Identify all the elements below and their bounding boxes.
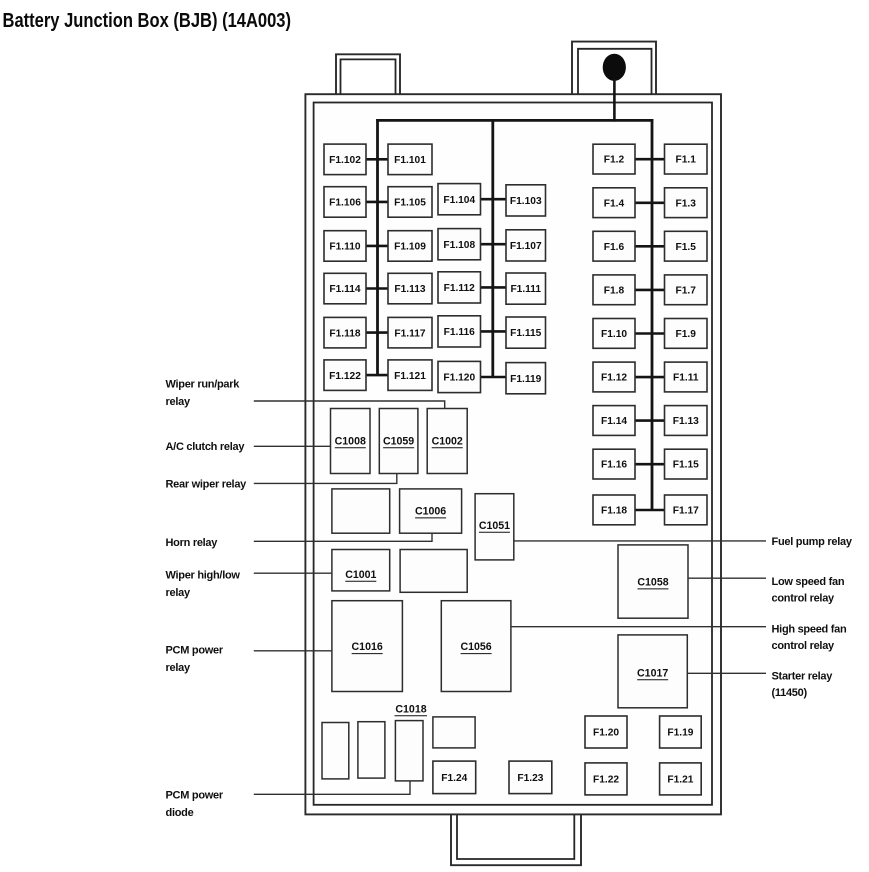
svg-text:F1.114: F1.114 <box>329 284 360 295</box>
svg-text:F1.118: F1.118 <box>329 328 360 339</box>
svg-text:F1.13: F1.13 <box>673 416 699 427</box>
svg-text:High speed fan: High speed fan <box>772 623 847 635</box>
svg-text:Rear wiper relay: Rear wiper relay <box>166 479 248 491</box>
svg-text:F1.24: F1.24 <box>441 773 467 784</box>
svg-text:C1006: C1006 <box>415 506 446 518</box>
svg-text:relay: relay <box>166 587 191 599</box>
svg-text:C1017: C1017 <box>637 667 668 679</box>
svg-text:diode: diode <box>166 807 194 819</box>
svg-text:F1.10: F1.10 <box>601 329 627 340</box>
svg-text:C1001: C1001 <box>345 569 376 581</box>
svg-text:F1.117: F1.117 <box>394 328 425 339</box>
svg-text:F1.105: F1.105 <box>394 198 426 209</box>
svg-text:Fuel pump relay: Fuel pump relay <box>772 536 853 548</box>
svg-text:F1.110: F1.110 <box>329 242 360 253</box>
svg-text:PCM power: PCM power <box>166 790 224 802</box>
svg-text:Starter relay: Starter relay <box>772 671 834 683</box>
svg-text:F1.16: F1.16 <box>601 460 627 471</box>
svg-text:F1.102: F1.102 <box>329 155 361 166</box>
svg-text:F1.112: F1.112 <box>444 283 475 294</box>
svg-text:F1.103: F1.103 <box>510 196 542 207</box>
svg-text:F1.109: F1.109 <box>394 242 426 253</box>
svg-text:F1.4: F1.4 <box>604 198 625 209</box>
svg-text:C1056: C1056 <box>460 641 491 653</box>
svg-text:F1.18: F1.18 <box>601 506 627 517</box>
svg-text:F1.107: F1.107 <box>510 241 542 252</box>
svg-text:C1051: C1051 <box>479 520 510 532</box>
svg-text:F1.1: F1.1 <box>676 155 697 166</box>
svg-text:F1.116: F1.116 <box>444 327 475 338</box>
svg-text:F1.108: F1.108 <box>443 240 475 251</box>
svg-text:Horn relay: Horn relay <box>166 537 219 549</box>
svg-text:Wiper high/low: Wiper high/low <box>166 569 241 581</box>
svg-text:F1.6: F1.6 <box>604 242 625 253</box>
svg-text:F1.113: F1.113 <box>394 284 425 295</box>
svg-text:F1.8: F1.8 <box>604 285 625 296</box>
svg-text:C1018: C1018 <box>395 703 426 715</box>
svg-text:F1.3: F1.3 <box>676 198 697 209</box>
svg-text:relay: relay <box>166 662 191 674</box>
svg-text:F1.115: F1.115 <box>510 328 541 339</box>
svg-text:F1.15: F1.15 <box>673 460 699 471</box>
svg-text:relay: relay <box>166 396 191 408</box>
svg-text:(11450): (11450) <box>772 687 808 699</box>
svg-text:F1.7: F1.7 <box>676 285 697 296</box>
svg-text:F1.106: F1.106 <box>329 198 361 209</box>
svg-text:C1058: C1058 <box>637 577 668 589</box>
svg-text:C1059: C1059 <box>383 435 414 447</box>
svg-text:F1.12: F1.12 <box>601 373 627 384</box>
svg-text:control relay: control relay <box>772 640 836 652</box>
svg-text:F1.20: F1.20 <box>593 728 619 739</box>
svg-text:F1.22: F1.22 <box>593 775 619 786</box>
svg-text:F1.121: F1.121 <box>394 371 426 382</box>
svg-text:Wiper run/park: Wiper run/park <box>166 379 241 391</box>
svg-text:Battery Junction Box (BJB) (14: Battery Junction Box (BJB) (14A003) <box>3 10 292 32</box>
svg-text:F1.19: F1.19 <box>667 728 693 739</box>
svg-text:F1.5: F1.5 <box>676 242 697 253</box>
svg-text:F1.14: F1.14 <box>601 416 627 427</box>
svg-text:F1.17: F1.17 <box>673 506 699 517</box>
svg-text:F1.11: F1.11 <box>673 373 699 384</box>
svg-text:F1.23: F1.23 <box>517 773 543 784</box>
svg-text:C1008: C1008 <box>335 435 366 447</box>
svg-text:F1.122: F1.122 <box>329 371 361 382</box>
svg-text:F1.2: F1.2 <box>604 155 625 166</box>
svg-text:F1.120: F1.120 <box>443 373 475 384</box>
svg-text:C1016: C1016 <box>352 641 383 653</box>
svg-text:F1.119: F1.119 <box>510 374 541 385</box>
svg-text:Low speed fan: Low speed fan <box>772 576 845 588</box>
svg-text:C1002: C1002 <box>432 435 463 447</box>
svg-text:F1.104: F1.104 <box>443 195 475 206</box>
svg-text:F1.9: F1.9 <box>676 329 697 340</box>
svg-text:F1.101: F1.101 <box>394 155 426 166</box>
svg-text:F1.21: F1.21 <box>667 775 693 786</box>
svg-text:A/C clutch relay: A/C clutch relay <box>166 441 246 453</box>
svg-text:control relay: control relay <box>772 593 836 605</box>
svg-text:F1.111: F1.111 <box>510 284 541 295</box>
svg-text:PCM power: PCM power <box>166 645 224 657</box>
